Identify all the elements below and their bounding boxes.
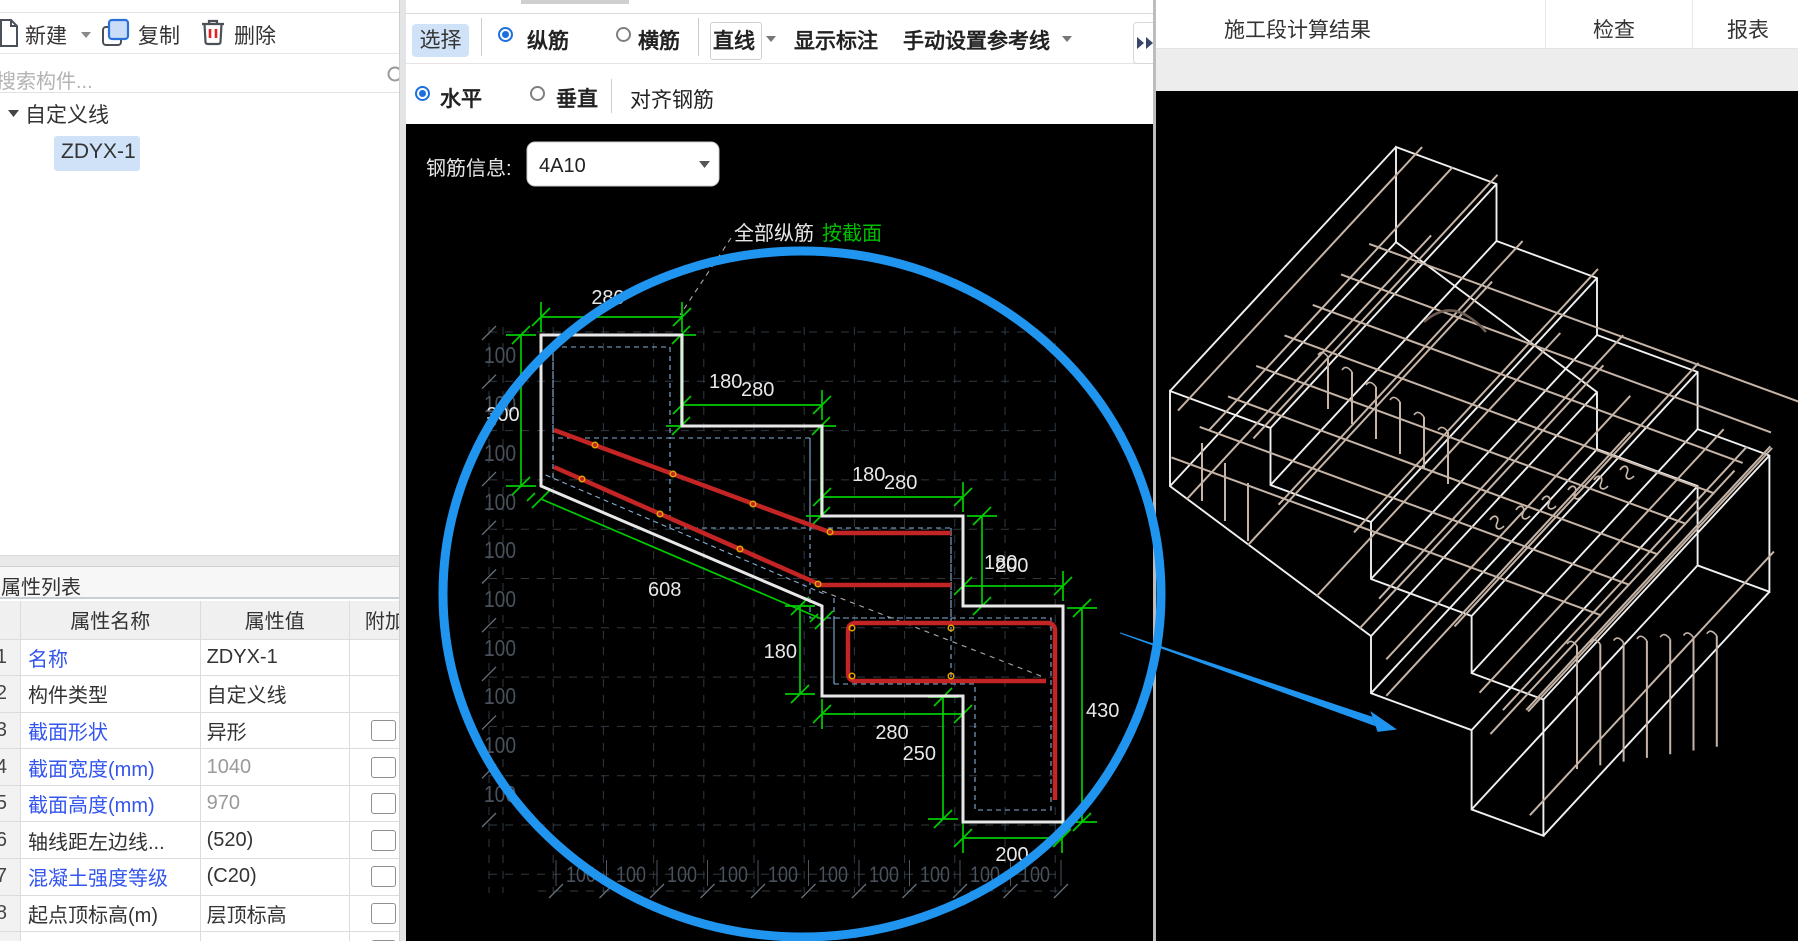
svg-text:200: 200 — [995, 844, 1028, 866]
svg-text:100: 100 — [667, 862, 697, 887]
svg-text:200: 200 — [995, 555, 1028, 577]
svg-text:300: 300 — [486, 404, 519, 426]
svg-text:100: 100 — [484, 489, 516, 515]
svg-text:100: 100 — [484, 342, 516, 368]
svg-text:4A10: 4A10 — [539, 155, 586, 177]
svg-text:100: 100 — [818, 862, 848, 887]
svg-text:100: 100 — [484, 537, 516, 563]
svg-text:180: 180 — [709, 371, 742, 393]
svg-text:100: 100 — [484, 586, 516, 612]
svg-text:100: 100 — [616, 862, 646, 887]
svg-text:全部纵筋: 全部纵筋 — [734, 222, 814, 245]
svg-text:100: 100 — [920, 862, 950, 887]
svg-text:100: 100 — [484, 732, 516, 758]
svg-text:430: 430 — [1086, 700, 1119, 722]
svg-text:100: 100 — [869, 862, 899, 887]
svg-text:180: 180 — [764, 641, 797, 663]
svg-text:608: 608 — [648, 579, 681, 601]
svg-text:280: 280 — [741, 379, 774, 401]
svg-text:180: 180 — [852, 464, 885, 486]
svg-text:100: 100 — [718, 862, 748, 887]
svg-text:100: 100 — [484, 781, 516, 807]
svg-text:100: 100 — [484, 440, 516, 466]
svg-text:280: 280 — [875, 722, 908, 744]
svg-text:按截面: 按截面 — [822, 222, 882, 245]
svg-text:280: 280 — [884, 472, 917, 494]
svg-text:100: 100 — [566, 862, 596, 887]
svg-text:100: 100 — [484, 635, 516, 661]
svg-text:100: 100 — [484, 683, 516, 709]
svg-text:100: 100 — [768, 862, 798, 887]
svg-text:钢筋信息:: 钢筋信息: — [426, 157, 512, 180]
svg-text:250: 250 — [903, 743, 936, 765]
svg-text:280: 280 — [591, 287, 624, 309]
